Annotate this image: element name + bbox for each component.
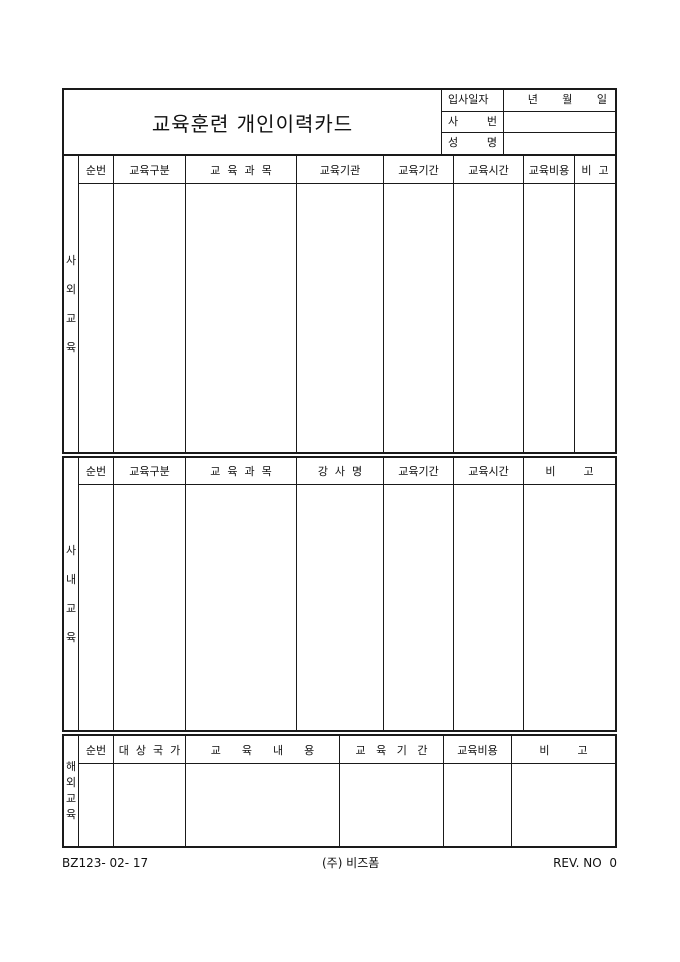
name-value	[504, 133, 615, 154]
section-label-internal: 사내교육	[64, 458, 79, 730]
col-header-seq: 순번	[79, 458, 114, 485]
revision-number: REV. NO 0	[553, 856, 617, 870]
col-header-period: 교육기간	[384, 458, 454, 485]
col-header-remarks: 비 고	[575, 156, 615, 184]
col-header-subject: 교 육 과 목	[186, 156, 297, 184]
body-cell	[114, 485, 186, 730]
col-header-seq: 순번	[79, 736, 114, 764]
col-header-period: 교육기간	[384, 156, 454, 184]
form-title: 교육훈련 개인이력카드	[64, 90, 442, 154]
col-header-category: 교육구분	[114, 458, 186, 485]
col-header-cost: 교육비용	[444, 736, 512, 764]
body-cell	[186, 764, 340, 846]
employee-number-value	[504, 112, 615, 133]
col-header-subject: 교 육 과 목	[186, 458, 297, 485]
company-name: (주) 비즈폼	[322, 854, 379, 871]
body-cell	[186, 485, 297, 730]
body-cell	[79, 184, 114, 452]
hire-date-label: 입사일자	[442, 90, 504, 112]
col-header-remarks: 비 고	[512, 736, 615, 764]
body-cell	[454, 184, 524, 452]
name-label: 성 명	[442, 133, 504, 154]
col-header-target-country: 대 상 국 가	[114, 736, 186, 764]
col-header-remarks: 비 고	[524, 458, 615, 485]
col-header-institution: 교육기관	[297, 156, 384, 184]
col-header-seq: 순번	[79, 156, 114, 184]
body-cell	[79, 764, 114, 846]
title-section: 교육훈련 개인이력카드 입사일자 년 월 일 사 번 성 명	[62, 88, 617, 156]
body-cell	[575, 184, 615, 452]
col-header-hours: 교육시간	[454, 458, 524, 485]
body-cell	[297, 184, 384, 452]
body-cell	[384, 184, 454, 452]
internal-education-table: 사내교육 순번 교육구분 교 육 과 목 강 사 명 교육기간 교육시간 비 고	[62, 456, 617, 732]
col-header-cost: 교육비용	[524, 156, 575, 184]
footer: BZ123- 02- 17 (주) 비즈폼 REV. NO 0	[62, 854, 617, 871]
section-label-overseas: 해외교육	[64, 736, 79, 846]
form-page: 교육훈련 개인이력카드 입사일자 년 월 일 사 번 성 명 사외교육 순번 교…	[0, 0, 680, 962]
hire-date-value: 년 월 일	[504, 90, 615, 112]
body-cell	[512, 764, 615, 846]
body-cell	[524, 485, 615, 730]
body-cell	[454, 485, 524, 730]
body-cell	[79, 485, 114, 730]
section-label-external: 사외교육	[64, 156, 79, 452]
col-header-content: 교 육 내 용	[186, 736, 340, 764]
body-cell	[524, 184, 575, 452]
body-cell	[114, 764, 186, 846]
body-cell	[186, 184, 297, 452]
body-cell	[297, 485, 384, 730]
body-cell	[340, 764, 444, 846]
overseas-education-table: 해외교육 순번 대 상 국 가 교 육 내 용 교 육 기 간 교육비용 비 고	[62, 734, 617, 848]
external-education-table: 사외교육 순번 교육구분 교 육 과 목 교육기관 교육기간 교육시간 교육비용…	[62, 154, 617, 454]
body-cell	[384, 485, 454, 730]
col-header-hours: 교육시간	[454, 156, 524, 184]
col-header-period: 교 육 기 간	[340, 736, 444, 764]
body-cell	[444, 764, 512, 846]
employee-number-label: 사 번	[442, 112, 504, 133]
col-header-instructor: 강 사 명	[297, 458, 384, 485]
document-number: BZ123- 02- 17	[62, 856, 148, 870]
col-header-category: 교육구분	[114, 156, 186, 184]
body-cell	[114, 184, 186, 452]
